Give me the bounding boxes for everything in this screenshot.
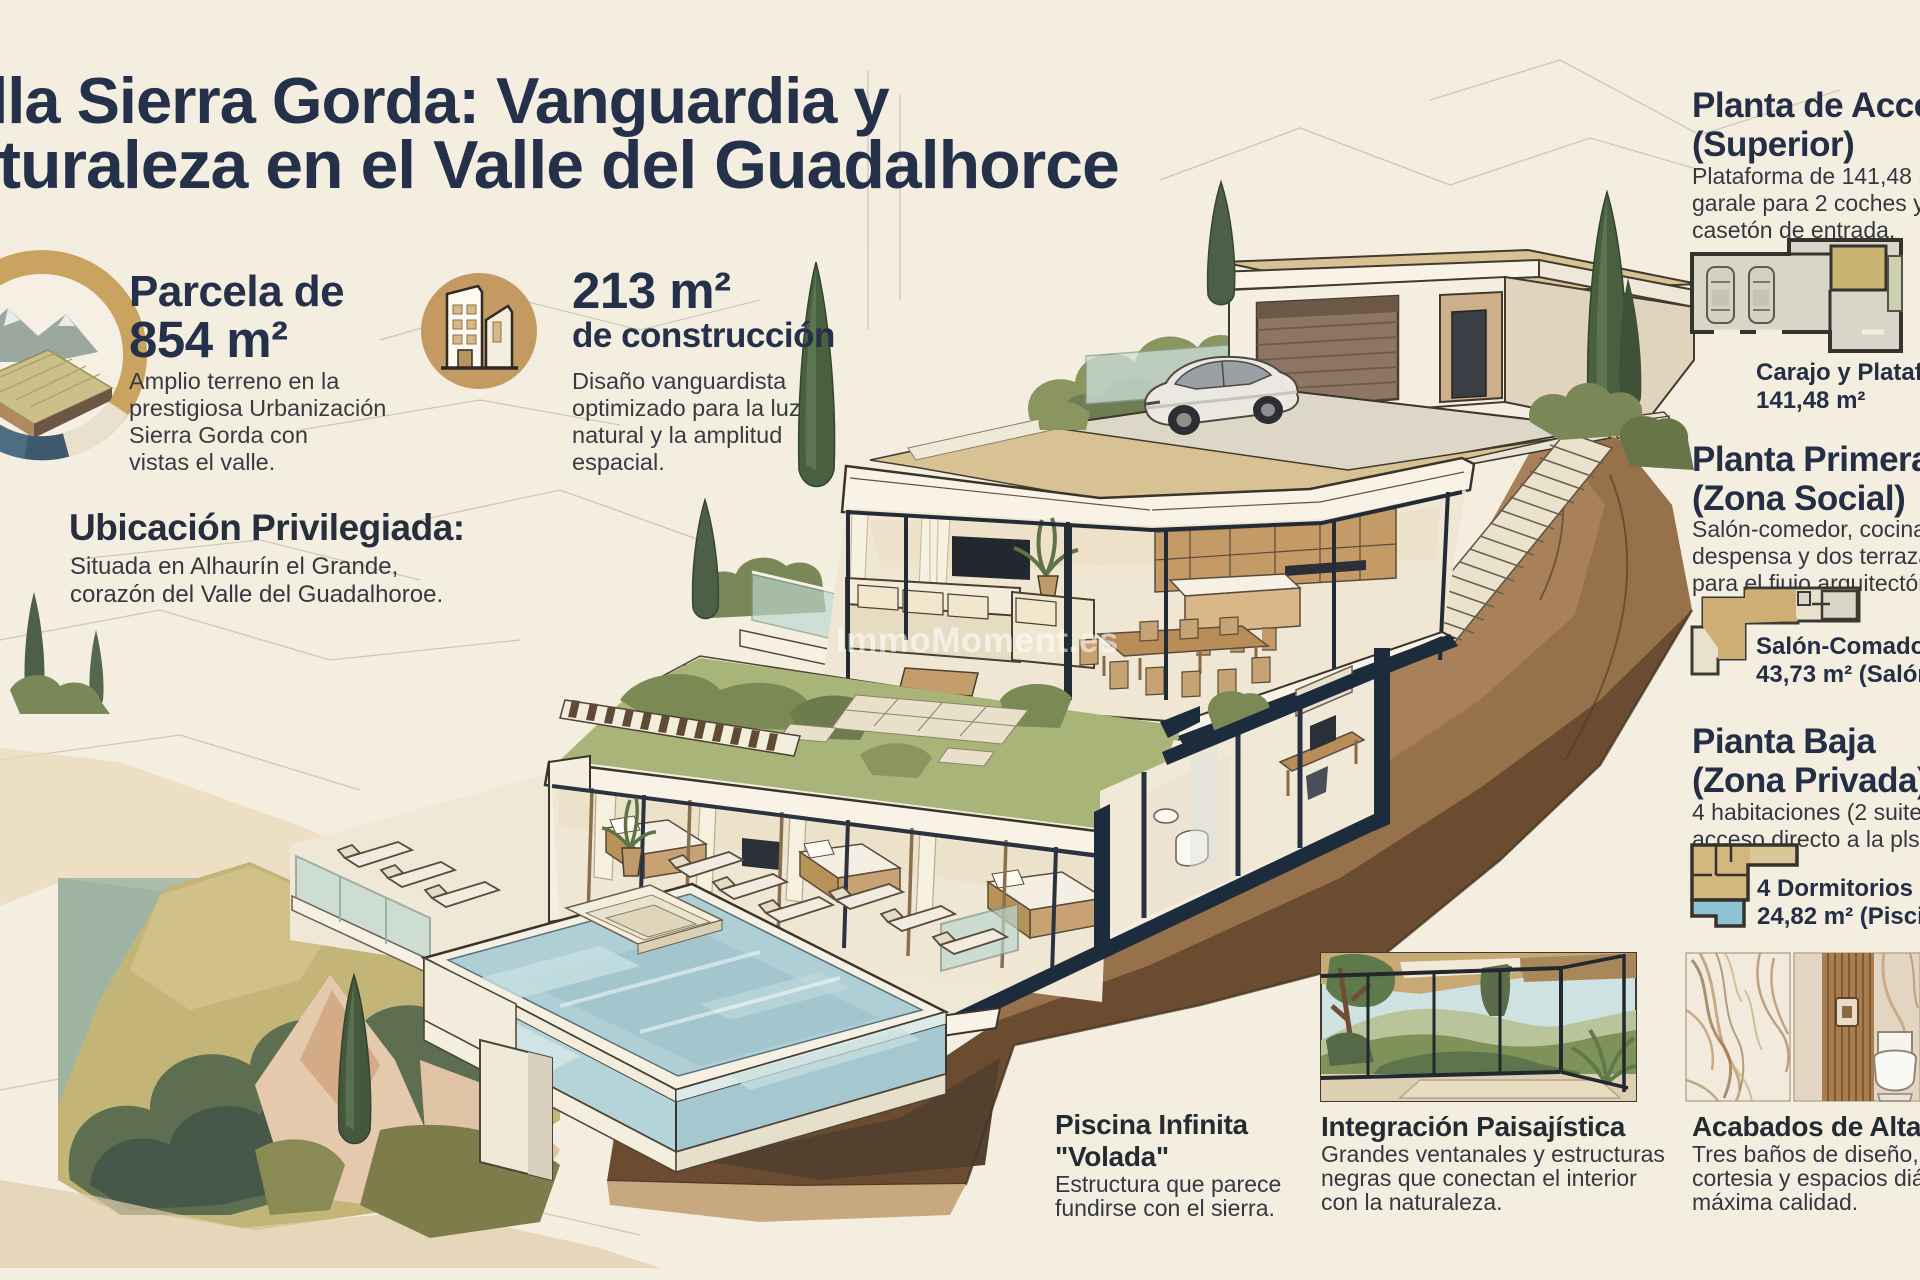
svg-text:natural y la amplitud: natural y la amplitud	[572, 422, 782, 448]
svg-text:213 m²: 213 m²	[572, 262, 731, 319]
svg-text:4 habitaciones (2 suites), c: 4 habitaciones (2 suites), c	[1692, 799, 1920, 825]
svg-text:Planta Primera: Planta Primera	[1692, 440, 1920, 479]
svg-text:vistas el valle.: vistas el valle.	[129, 449, 275, 475]
svg-text:máxima calidad.: máxima calidad.	[1692, 1189, 1858, 1215]
svg-text:negras que conectan el interio: negras que conectan el interior	[1321, 1165, 1637, 1191]
svg-text:fundirse con el sierra.: fundirse con el sierra.	[1055, 1195, 1275, 1221]
svg-text:(Superior): (Superior)	[1692, 125, 1854, 164]
svg-text:43,73 m² (Salón): 43,73 m² (Salón)	[1756, 661, 1920, 688]
svg-text:despensa y dos terrazas cl: despensa y dos terrazas cl	[1692, 543, 1920, 569]
svg-text:Carajo y Plataforma: Carajo y Plataforma	[1756, 359, 1920, 386]
svg-text:"Volada": "Volada"	[1055, 1141, 1169, 1172]
svg-text:854 m²: 854 m²	[129, 311, 288, 368]
svg-text:de construcción: de construcción	[572, 316, 835, 355]
svg-text:Ubicación Privilegiada:: Ubicación Privilegiada:	[69, 507, 465, 548]
svg-text:Amplio terreno en la: Amplio terreno en la	[129, 368, 340, 394]
svg-text:espacial.: espacial.	[572, 449, 665, 475]
svg-text:Disaño vanguardista: Disaño vanguardista	[572, 368, 787, 394]
svg-text:(Zona Privada): (Zona Privada)	[1692, 761, 1920, 800]
svg-text:naturaleza en el Valle del Gua: naturaleza en el Valle del Guadalhorce	[0, 127, 1119, 203]
svg-text:Sierra Gorda con: Sierra Gorda con	[129, 422, 308, 448]
svg-text:Tres baños de diseño, aseo: Tres baños de diseño, aseo	[1692, 1141, 1920, 1167]
svg-text:Piscina Infinita: Piscina Infinita	[1055, 1109, 1249, 1140]
svg-text:ImmoMoment.es: ImmoMoment.es	[836, 621, 1119, 660]
svg-text:Grandes ventanales y estructur: Grandes ventanales y estructuras	[1321, 1141, 1665, 1167]
svg-text:Plataforma de 141,48 m² de: Plataforma de 141,48 m² de	[1692, 163, 1920, 189]
svg-text:corazón del Valle del Guadalho: corazón del Valle del Guadalhoroe.	[70, 581, 443, 608]
svg-text:Planta de Acceso: Planta de Acceso	[1692, 86, 1920, 125]
svg-text:Situada en Alhaurín el Grande,: Situada en Alhaurín el Grande,	[70, 553, 398, 580]
svg-text:Salón-comedor, cocina con: Salón-comedor, cocina con	[1692, 516, 1920, 542]
svg-text:Integración Paisajística: Integración Paisajística	[1321, 1111, 1626, 1142]
svg-text:Pianta Baja: Pianta Baja	[1692, 722, 1876, 761]
svg-text:Estructura que parece: Estructura que parece	[1055, 1171, 1281, 1197]
svg-text:24,82 m² (Piscina): 24,82 m² (Piscina)	[1757, 903, 1920, 930]
svg-text:con la naturaleza.: con la naturaleza.	[1321, 1189, 1503, 1215]
svg-text:141,48 m²: 141,48 m²	[1756, 387, 1865, 414]
svg-text:Parcela de: Parcela de	[129, 267, 344, 316]
svg-text:(Zona Social): (Zona Social)	[1692, 479, 1905, 518]
svg-text:garale para 2 coches y: garale para 2 coches y	[1692, 190, 1920, 216]
svg-text:Salón-Comador y: Salón-Comador y	[1756, 633, 1920, 660]
svg-text:4 Dormitorios y Of: 4 Dormitorios y Of	[1757, 875, 1920, 902]
svg-text:prestigiosa Urbanización: prestigiosa Urbanización	[129, 395, 386, 421]
svg-text:optimizado para la luz: optimizado para la luz	[572, 395, 801, 421]
svg-text:cortesia y espacios diáfanos: cortesia y espacios diáfanos	[1692, 1165, 1920, 1191]
svg-text:Acabados de Alta Gama: Acabados de Alta Gama	[1692, 1111, 1920, 1142]
